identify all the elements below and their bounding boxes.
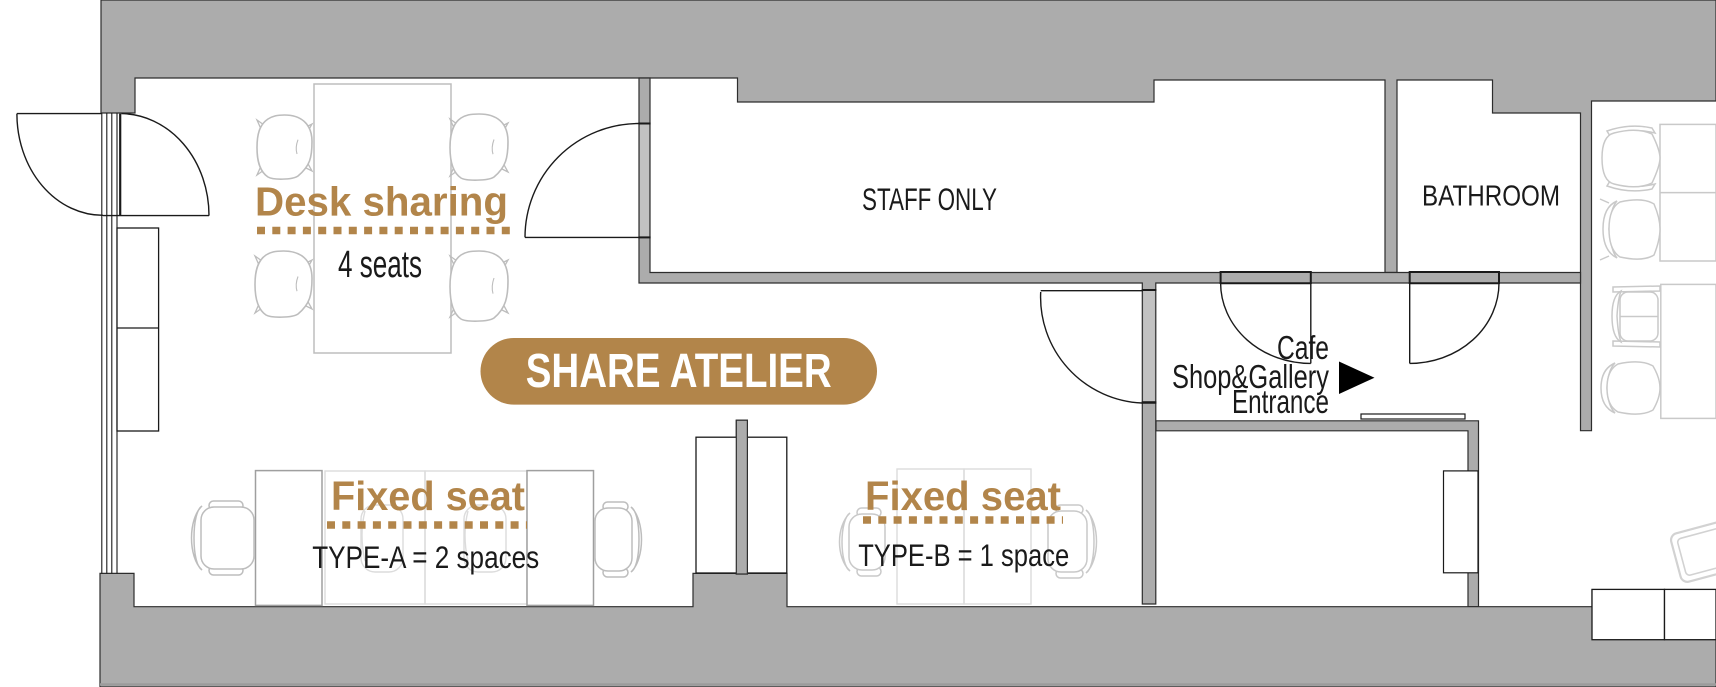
svg-text:TYPE-B = 1 space: TYPE-B = 1 space bbox=[858, 537, 1069, 573]
svg-text:Fixed seat: Fixed seat bbox=[331, 473, 525, 519]
svg-text:Fixed seat: Fixed seat bbox=[865, 473, 1061, 519]
svg-text:TYPE-A = 2 spaces: TYPE-A = 2 spaces bbox=[312, 539, 539, 575]
svg-text:Desk sharing: Desk sharing bbox=[255, 179, 508, 225]
svg-text:Entrance: Entrance bbox=[1232, 383, 1329, 420]
svg-text:STAFF ONLY: STAFF ONLY bbox=[862, 181, 997, 217]
svg-text:BATHROOM: BATHROOM bbox=[1422, 181, 1560, 213]
svg-text:SHARE ATELIER: SHARE ATELIER bbox=[526, 344, 832, 398]
svg-text:4 seats: 4 seats bbox=[338, 244, 422, 286]
